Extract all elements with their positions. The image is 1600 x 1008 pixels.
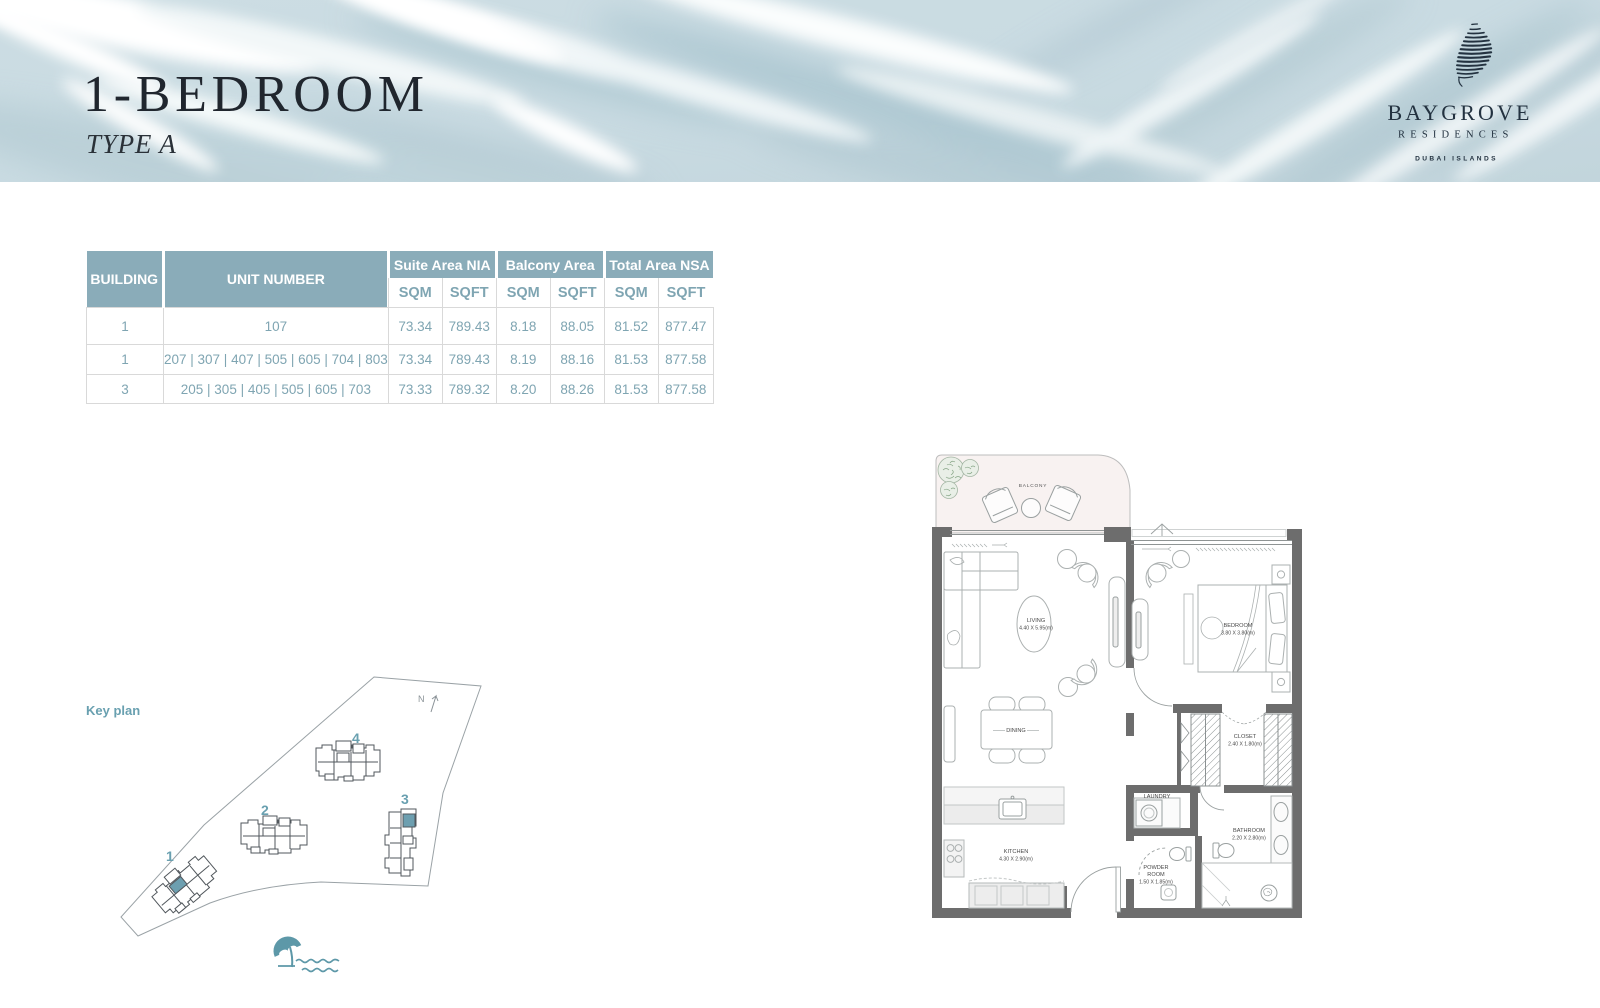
svg-text:DUBAI ISLANDS: DUBAI ISLANDS <box>1415 156 1498 163</box>
svg-text:1: 1 <box>166 848 174 864</box>
svg-text:4.40 X 5.95(m): 4.40 X 5.95(m) <box>1019 626 1053 632</box>
svg-text:KITCHEN: KITCHEN <box>1004 849 1029 855</box>
svg-text:4.30 X 2.90(m): 4.30 X 2.90(m) <box>999 857 1033 863</box>
svg-text:POWDER: POWDER <box>1143 865 1168 871</box>
svg-text:1.50 X 1.85(m): 1.50 X 1.85(m) <box>1139 880 1173 886</box>
svg-text:2.40 X 1.80(m): 2.40 X 1.80(m) <box>1228 742 1262 748</box>
svg-text:ROOM: ROOM <box>1147 872 1165 878</box>
svg-text:DINING: DINING <box>1006 728 1026 734</box>
svg-text:4: 4 <box>352 730 360 746</box>
svg-text:BATHROOM: BATHROOM <box>1233 828 1265 834</box>
svg-text:BEDROOM: BEDROOM <box>1224 623 1253 629</box>
svg-text:2.20 X 2.80(m): 2.20 X 2.80(m) <box>1232 836 1266 842</box>
svg-text:LAUNDRY: LAUNDRY <box>1144 794 1171 800</box>
svg-text:CLOSET: CLOSET <box>1234 734 1257 740</box>
svg-text:3.80 X 3.80(m): 3.80 X 3.80(m) <box>1221 631 1255 637</box>
svg-text:BAYGROVE: BAYGROVE <box>1387 100 1532 125</box>
svg-text:LIVING: LIVING <box>1027 618 1045 624</box>
svg-text:Key plan: Key plan <box>86 703 140 718</box>
svg-text:BALCONY: BALCONY <box>1019 483 1048 489</box>
svg-text:3: 3 <box>401 791 409 807</box>
svg-text:2: 2 <box>261 802 269 818</box>
svg-text:N: N <box>418 694 425 704</box>
svg-text:RESIDENCES: RESIDENCES <box>1398 130 1514 141</box>
